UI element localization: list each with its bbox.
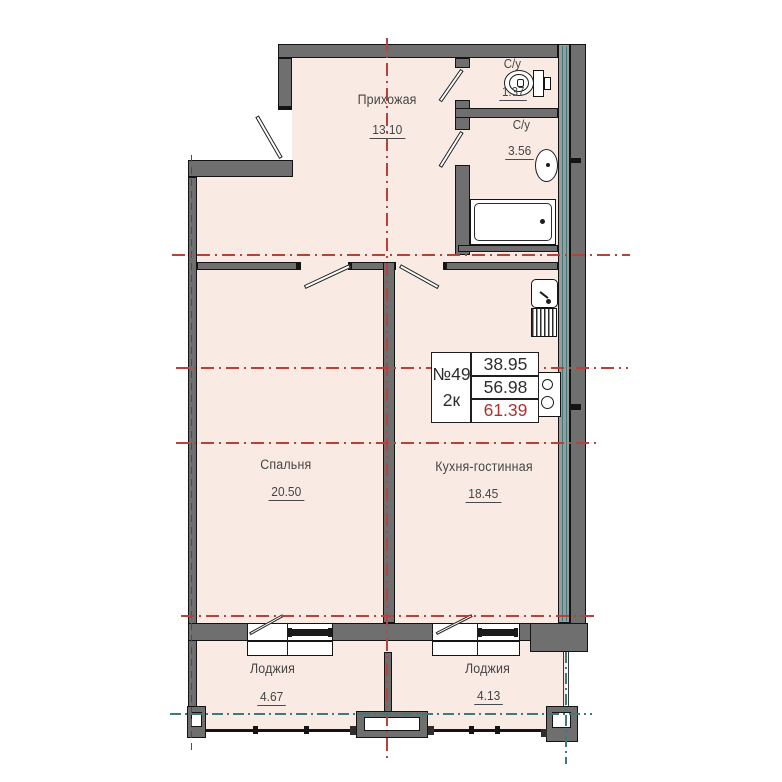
wall-bath-left <box>455 165 470 255</box>
toilet-connector <box>544 77 551 90</box>
window-mullion <box>287 623 288 641</box>
room-label-kitchen: Кухня-гостинная <box>409 459 559 474</box>
window-glazing-cap <box>288 628 292 637</box>
unit-number: №49 <box>432 361 471 387</box>
window-sill-kitchen <box>432 641 520 656</box>
wall-tick <box>571 404 581 410</box>
room-label-hallway: Прихожая <box>327 92 447 107</box>
window-mullion <box>287 641 288 656</box>
room-area-wc-big: 3.56 <box>495 143 545 160</box>
room-label-loggia-right: Лоджия <box>438 661 538 676</box>
stove-burner <box>542 379 553 390</box>
pillar-tab <box>428 726 434 735</box>
room-area-loggia-left: 4.67 <box>222 689 322 706</box>
wall-cap <box>443 262 447 270</box>
wall-bedroom-top <box>197 262 301 270</box>
floor-hallway-west <box>197 177 292 262</box>
wall-tick <box>571 158 581 163</box>
room-label-wc-big: С/у <box>496 118 546 132</box>
pillar-center-core <box>364 717 420 731</box>
info-box-divider <box>470 352 472 423</box>
window-mullion <box>477 623 478 641</box>
insulation-line <box>566 46 567 621</box>
window-mullion <box>477 641 478 656</box>
room-area-hallway: 13.10 <box>337 122 437 139</box>
unit-info-box: №49 2к 38.95 56.98 61.39 <box>431 352 539 423</box>
room-label-wc-small: С/у <box>487 57 537 71</box>
insulation-line <box>562 46 563 621</box>
stove-burner <box>541 396 554 409</box>
room-area-kitchen: 18.45 <box>433 486 533 503</box>
axis-line-vertical-main <box>386 38 388 762</box>
window-glazing-cap <box>478 628 482 637</box>
axis-line-horizontal <box>181 615 596 617</box>
axis-line-teal-horizontal <box>170 713 592 715</box>
info-box-divider <box>470 398 539 400</box>
loggia-divider <box>384 652 392 712</box>
info-box-divider <box>470 375 539 377</box>
pillar-tab <box>350 726 356 735</box>
unit-area-total: 56.98 <box>471 376 540 399</box>
floor-plan: №49 2к 38.95 56.98 61.39 Прихожая 13.10 … <box>0 0 782 782</box>
wall-bath-divider <box>455 108 558 118</box>
axis-line-horizontal <box>176 367 628 369</box>
axis-line-horizontal <box>172 254 630 256</box>
bathtub-drain <box>540 219 545 224</box>
unit-area-full: 61.39 <box>471 399 540 421</box>
room-area-bedroom: 20.50 <box>236 484 336 501</box>
wall-bath-left <box>455 58 470 68</box>
railing-post <box>253 726 258 734</box>
wall-kitchen-top <box>443 262 558 270</box>
kitchen-faucet <box>546 299 551 304</box>
wall-cap <box>278 106 292 110</box>
window-glazing-cap <box>328 628 332 637</box>
wall-cap <box>296 262 301 270</box>
pillar-tab <box>541 729 547 737</box>
railing-post <box>304 726 309 734</box>
wall-bath-bottom <box>458 245 558 252</box>
window-glazing-bar <box>480 629 518 636</box>
wall-right-inner <box>558 44 570 623</box>
sink-drain <box>546 163 550 167</box>
wall-entrance-stub <box>278 58 292 110</box>
room-area-wc-small: 1.37 <box>488 85 538 101</box>
axis-line-teal-vertical <box>565 652 567 764</box>
room-area-loggia-right: 4.13 <box>439 688 539 705</box>
axis-line-vertical-left <box>191 155 193 750</box>
wall-entrance-block <box>188 160 293 177</box>
unit-rooms-type: 2к <box>432 387 471 413</box>
room-label-loggia-left: Лоджия <box>223 661 323 676</box>
wall-corner-br <box>530 623 588 652</box>
axis-line-horizontal <box>176 442 600 444</box>
vent-shaft <box>531 308 557 337</box>
railing-post <box>495 726 500 734</box>
railing-post <box>469 726 474 734</box>
window-sill-bedroom <box>247 641 333 656</box>
room-label-bedroom: Спальня <box>226 457 346 472</box>
wall-top <box>278 44 558 58</box>
unit-area-living: 38.95 <box>471 353 540 376</box>
window-glazing-bar <box>290 629 330 636</box>
window-glazing-cap <box>514 628 518 637</box>
door-entrance-leaf <box>255 115 282 159</box>
wall-right-outer <box>570 44 586 652</box>
